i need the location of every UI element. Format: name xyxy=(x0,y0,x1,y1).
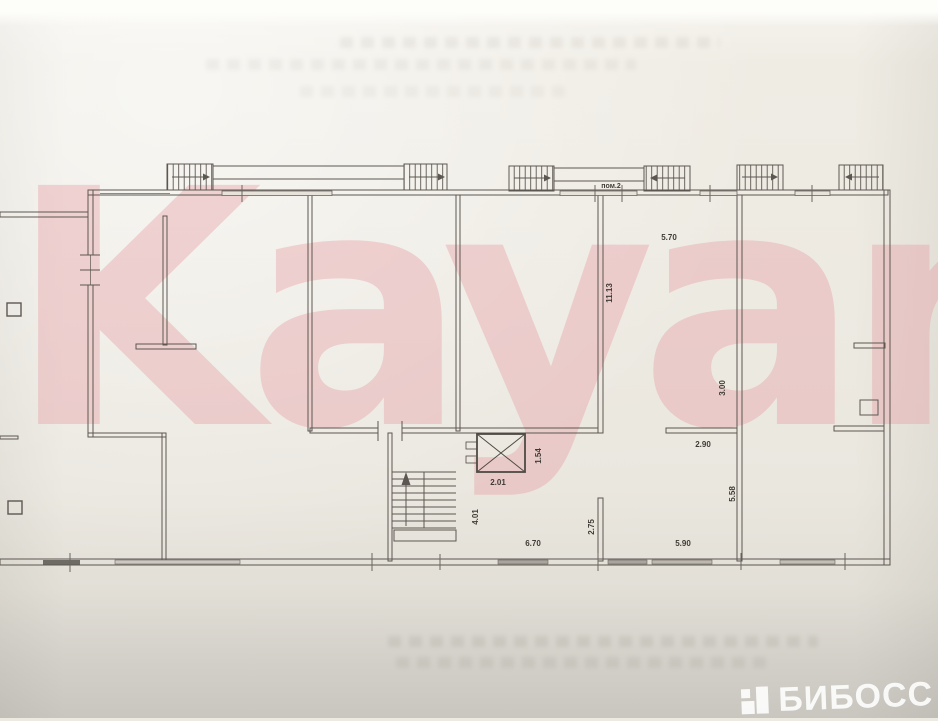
shaft-door-jamb xyxy=(466,456,477,463)
wall-top xyxy=(88,190,888,195)
wall-left-lower xyxy=(88,285,93,437)
window-left xyxy=(80,255,100,285)
wall-corridor-b xyxy=(402,428,598,433)
dimension-label: 5.90 xyxy=(675,539,691,548)
dimension-label: 11.13 xyxy=(605,283,614,303)
wall-left-upper xyxy=(88,190,93,255)
wall-wing-top xyxy=(0,212,88,217)
window xyxy=(700,191,737,196)
wall-right-partition xyxy=(834,426,884,431)
wall-corridor-a xyxy=(310,428,378,433)
wall-opening-stub xyxy=(666,428,737,433)
biboss-logo-icon xyxy=(741,686,772,717)
room-label: пом.2 xyxy=(601,183,621,190)
window xyxy=(222,191,332,196)
building-walls xyxy=(0,190,890,565)
window xyxy=(498,560,548,564)
window xyxy=(115,560,240,564)
window xyxy=(560,191,637,196)
dimension-label: 2.01 xyxy=(490,478,506,487)
biboss-logo-text: БИБОСС xyxy=(778,675,934,720)
floor-plan: пом.2 5.70 11.13 3.00 2.90 5.58 1.54 2.0… xyxy=(0,0,938,718)
biboss-watermark: БИБОСС xyxy=(741,675,934,721)
dimension-label: 1.54 xyxy=(534,448,543,464)
stair-flight xyxy=(839,165,883,190)
wall-room-divider-2 xyxy=(456,195,460,431)
dimension-label: 2.90 xyxy=(695,440,711,449)
stair-flight xyxy=(509,166,554,191)
column-marker xyxy=(8,501,22,514)
dimension-label: 4.01 xyxy=(471,509,480,525)
stair-landing xyxy=(394,530,456,541)
wall-room-divider-3-upper xyxy=(598,195,603,433)
dimension-label: 5.58 xyxy=(728,486,737,502)
stairwell-wall xyxy=(388,433,392,561)
wall-right-notch xyxy=(860,400,878,415)
dimension-label: 6.70 xyxy=(525,539,541,548)
column-marker xyxy=(7,303,21,316)
stair-flight xyxy=(404,164,447,190)
bottom-facade-windows xyxy=(43,553,845,572)
porch-platform xyxy=(554,168,644,181)
dimension-label: 2.75 xyxy=(587,519,596,535)
window xyxy=(608,560,647,564)
dimension-label: 3.00 xyxy=(718,380,727,396)
dimension-labels: пом.2 5.70 11.13 3.00 2.90 5.58 1.54 2.0… xyxy=(471,183,737,548)
porch-platform xyxy=(213,166,404,179)
wall-jog-vertical xyxy=(162,433,166,561)
interior-walls xyxy=(136,195,885,561)
wall-right-stub xyxy=(854,343,885,348)
elevator-shaft xyxy=(466,434,525,472)
stair-flight xyxy=(167,164,213,190)
stair-flight xyxy=(737,165,783,190)
stair-flight xyxy=(644,166,690,191)
wall-jog-horizontal xyxy=(88,433,166,437)
wall-t-vertical xyxy=(163,216,167,345)
window-glazing-dark xyxy=(43,560,80,565)
wall-room-divider-1 xyxy=(308,195,312,431)
entrance-stairs xyxy=(167,164,883,191)
wall-wing-stub xyxy=(0,436,18,439)
window xyxy=(652,560,712,564)
wall-room-divider-3-lower xyxy=(598,498,603,561)
dimension-label: 5.70 xyxy=(661,233,677,242)
wall-right xyxy=(884,190,890,565)
wall-room-divider-4 xyxy=(737,195,742,561)
staircase xyxy=(388,433,456,561)
window xyxy=(780,560,835,564)
shaft-door-jamb xyxy=(466,442,477,449)
